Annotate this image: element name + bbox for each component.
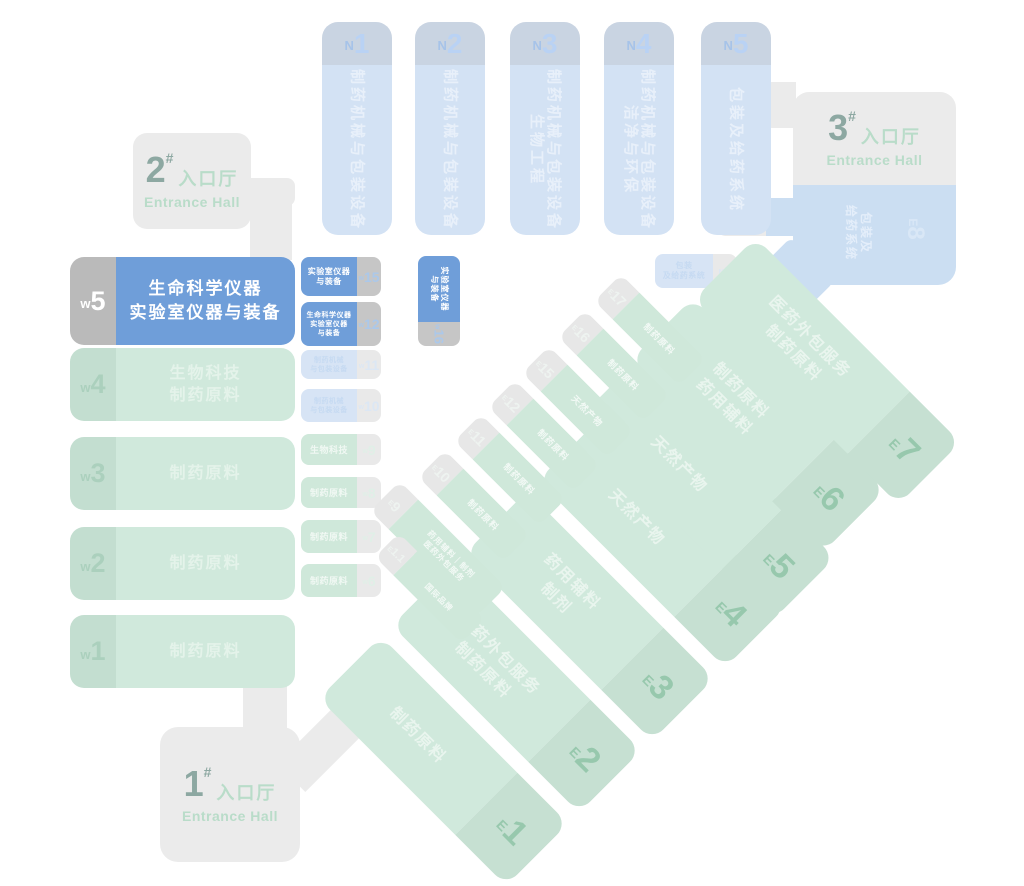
hall-e8-category-text: 包装及 给药系统 [843,205,873,261]
hall-category-line: 生命科学仪器 [130,277,282,301]
entrance-number: 1 [184,766,204,802]
hall-letter: E [906,218,920,226]
hall-category-line: 制药机械 [310,356,348,365]
hall-category-line: 制药原料 [310,488,348,498]
hall-w6-area: 制药原料 [301,564,357,597]
hall-category-line: 实验室仪器 [308,267,351,277]
hall-category-line: 生物工程 [528,69,545,231]
hall-number: 4 [91,371,106,398]
hall-number: 2 [91,550,106,577]
hall-w2[interactable]: w2 制药原料 [70,527,295,600]
hall-category-line: 洁净与环保 [622,69,639,231]
hall-number: 8 [368,486,376,500]
hall-w6-label: w6 [357,564,381,597]
hall-e8-label: E8 [903,218,927,239]
hall-category-line: 制药原料 [310,576,348,586]
hall-w15-label: w15 [357,257,381,296]
hall-category-line: 制药原料 [605,357,641,393]
hall-n4-area: 制药机械与包装设备洁净与环保 [604,65,674,235]
hall-category-line: 天然产物 [569,393,605,429]
hall-category-line: 制药原料 [641,321,677,357]
hall-letter: w [80,380,90,395]
hall-w6[interactable]: 制药原料 w6 [301,564,381,597]
hall-category-line: 与装备 [429,267,439,312]
hall-n4[interactable]: N4 制药机械与包装设备洁净与环保 [604,22,674,235]
hall-w11-label: w11 [357,350,381,379]
hall-letter: N [724,38,733,53]
entrance-1-title: 1 # 入口厅 [184,766,277,805]
hall-w15[interactable]: 实验室仪器与装备 w15 [301,257,381,296]
hall-w11[interactable]: 制药机械与包装设备 w11 [301,350,381,379]
hall-category-line: 制药机械与包装设备 [639,69,656,231]
hall-category-line: 制药原料 [169,385,241,407]
corridor-entrance2-to-w5 [250,190,292,260]
hall-w5-area: 生命科学仪器实验室仪器与装备 [116,257,295,345]
hall-n3-area: 制药机械与包装设备生物工程 [510,65,580,235]
hall-category-line: 生物科技 [169,363,241,385]
hall-w8[interactable]: 制药原料 w8 [301,477,381,508]
hall-number: 1 [354,30,370,58]
hall-category-line: 国际品牌 [423,581,456,614]
hall-w10-label: w10 [357,389,381,422]
hall-w7[interactable]: 制药原料 w7 [301,520,381,553]
hall-n6-area: 包装及给药系统 [655,254,713,288]
hall-category-line: 制药机械与包装设备 [545,69,562,231]
hall-w2-area: 制药原料 [116,527,295,600]
entrance-cn-label: 入口厅 [178,165,238,191]
entrance-hall-3[interactable]: 3 # 入口厅 Entrance Hall [793,92,956,185]
entrance-en-label: Entrance Hall [827,152,923,168]
hall-category-line: 包装及 [858,205,873,261]
hall-n5[interactable]: N5 包装及给药系统 [701,22,771,235]
hall-w11-area: 制药机械与包装设备 [301,350,357,379]
hall-w4-label: w4 [70,348,116,421]
entrance-hall-1[interactable]: 1 # 入口厅 Entrance Hall [160,727,300,862]
hall-w4-area: 生物科技制药原料 [116,348,295,421]
entrance-cn-label: 入口厅 [861,123,921,149]
hall-number: 5 [91,288,106,315]
hall-n5-label: N5 [701,22,771,65]
hall-w4[interactable]: w4 生物科技制药原料 [70,348,295,421]
hall-letter: N [345,38,354,53]
hall-letter: N [438,38,447,53]
hall-number: 16 [433,329,446,343]
hall-w16[interactable]: 实验室仪器与装备 w16 [418,256,460,346]
hall-w9-area: 生物科技 [301,434,357,465]
entrance-2-title: 2 # 入口厅 [146,152,239,191]
hall-category-line: 制药原料 [535,427,571,463]
hall-w3-label: w3 [70,437,116,510]
hall-number: 1 [91,638,106,665]
hall-n2-label: N2 [415,22,485,65]
hall-letter: N [627,38,636,53]
hall-w12-area: 生命科学仪器实验室仪器与装备 [301,302,357,346]
hall-letter: w [80,559,90,574]
hall-category-line: 给药系统 [843,205,858,261]
hall-number: 5 [733,30,749,58]
hall-number: 4 [636,30,652,58]
hall-w16-area: 实验室仪器与装备 [418,256,460,322]
hall-w10-area: 制药机械与包装设备 [301,389,357,422]
hall-n2-area: 制药机械与包装设备 [415,65,485,235]
entrance-en-label: Entrance Hall [144,194,240,210]
hall-w5[interactable]: w5 生命科学仪器实验室仪器与装备 [70,257,295,345]
hall-w7-area: 制药原料 [301,520,357,553]
hall-w8-area: 制药原料 [301,477,357,508]
hall-e8[interactable]: 包装及 给药系统 E8 [793,185,956,285]
hall-category-line: 生物科技 [310,445,348,455]
hall-category-line: 制药机械与包装设备 [349,69,366,231]
entrance-number: 3 [828,110,848,146]
hall-w1[interactable]: w1 制药原料 [70,615,295,688]
hall-category-line: 实验室仪器与装备 [130,301,282,325]
hall-w7-label: w7 [357,520,381,553]
hall-category-line: 实验室仪器 [439,267,449,312]
entrance-3-title: 3 # 入口厅 [828,110,921,149]
entrance-hash: # [204,764,212,780]
hall-w9-label: w9 [357,434,381,465]
hall-n1-area: 制药机械与包装设备 [322,65,392,235]
hall-w10[interactable]: 制药机械与包装设备 w10 [301,389,381,422]
hall-number: 2 [447,30,463,58]
hall-number: 7 [368,530,376,544]
hall-number: 3 [542,30,558,58]
hall-category-line: 制药机械与包装设备 [442,69,459,231]
hall-category-line: 实验室仪器 [307,320,352,329]
hall-number: 11 [364,358,379,372]
hall-n5-area: 包装及给药系统 [701,65,771,235]
hall-n3[interactable]: N3 制药机械与包装设备生物工程 [510,22,580,235]
hall-w15-area: 实验室仪器与装备 [301,257,357,296]
hall-category-line: 生命科学仪器 [307,311,352,320]
hall-number: 15 [364,270,380,284]
hall-number: 12 [364,317,380,331]
hall-w12[interactable]: 生命科学仪器实验室仪器与装备 w12 [301,302,381,346]
entrance-hash: # [848,108,856,124]
hall-category-line: 天然产物 [646,431,713,498]
hall-w2-label: w2 [70,527,116,600]
hall-category-line: 制药原料 [465,497,501,533]
hall-category-line: 制药原料 [310,532,348,542]
hall-category-line: 制药原料 [169,641,241,663]
hall-letter: w [80,469,90,484]
hall-w3[interactable]: w3 制药原料 [70,437,295,510]
hall-number: 10 [364,399,380,413]
hall-n1-label: N1 [322,22,392,65]
hall-number: 3 [91,460,106,487]
hall-w1-area: 制药原料 [116,615,295,688]
hall-category-line: 与装备 [307,329,352,338]
hall-letter: N [533,38,542,53]
hall-w9[interactable]: 生物科技 w9 [301,434,381,465]
hall-n2[interactable]: N2 制药机械与包装设备 [415,22,485,235]
hall-w3-area: 制药原料 [116,437,295,510]
hall-category-line: 包装及给药系统 [728,87,745,213]
entrance-hash: # [166,150,174,166]
hall-n1[interactable]: N1 制药机械与包装设备 [322,22,392,235]
hall-category-line: 制药原料 [501,461,537,497]
hall-category-line: 制药原料 [169,463,241,485]
hall-number: 8 [903,226,927,239]
hall-category-line: 及给药系统 [663,271,706,281]
hall-category-line: 制药原料 [384,702,451,769]
hall-w16-label: w16 [418,322,460,346]
hall-n3-label: N3 [510,22,580,65]
entrance-cn-label: 入口厅 [216,779,276,805]
hall-category-line: 制药原料 [169,553,241,575]
entrance-hall-2[interactable]: 2 # 入口厅 Entrance Hall [133,133,251,229]
hall-letter: w [80,296,90,311]
entrance-number: 2 [146,152,166,188]
hall-category-line: 与包装设备 [310,365,348,374]
hall-n4-label: N4 [604,22,674,65]
hall-w12-label: w12 [357,302,381,346]
hall-category-line: 与装备 [308,277,351,287]
entrance-en-label: Entrance Hall [182,808,278,824]
hall-w5-label: w5 [70,257,116,345]
hall-w1-label: w1 [70,615,116,688]
hall-category-line: 与包装设备 [310,406,348,415]
hall-number: 9 [368,443,376,457]
hall-category-line: 制药机械 [310,397,348,406]
hall-category-line: 包装 [663,261,706,271]
hall-letter: w [80,647,90,662]
exhibition-floor-plan: { "map": { "north_halls": [ {"letter":"N… [0,0,1024,874]
hall-number: 6 [368,574,376,588]
